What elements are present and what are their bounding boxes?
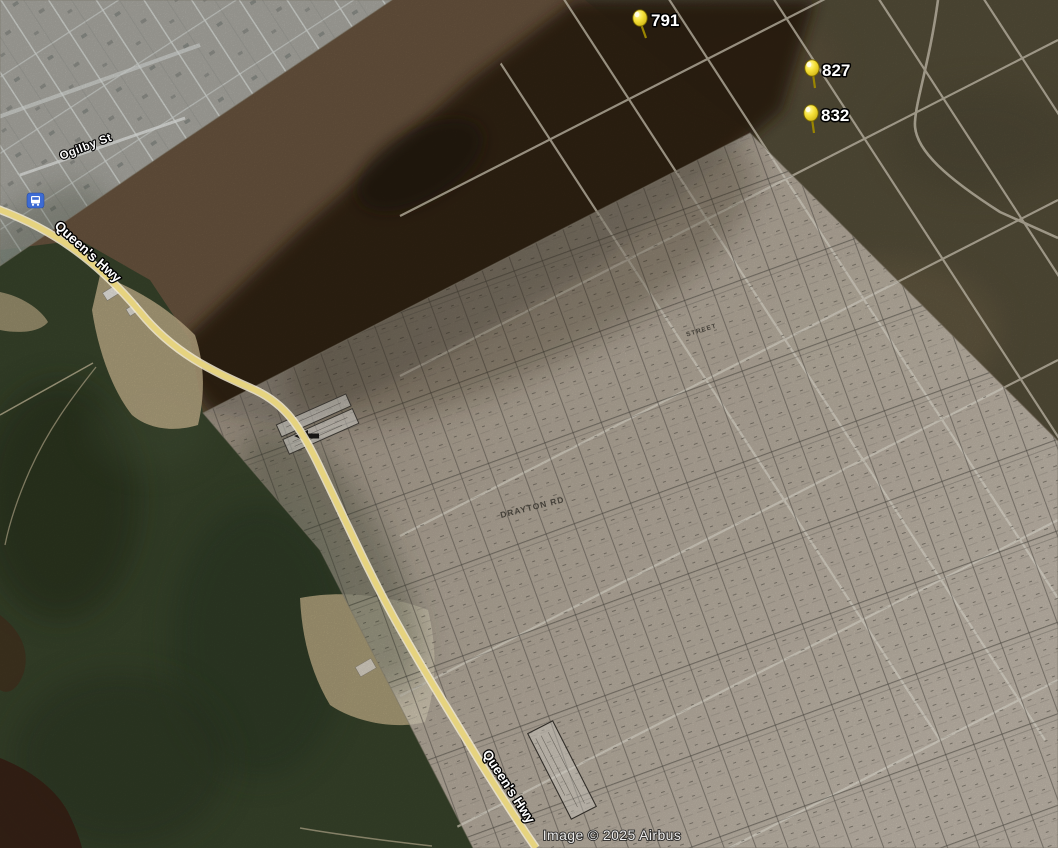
- pin-label-832[interactable]: 832: [821, 106, 849, 125]
- grain-texture: [0, 0, 1058, 848]
- pin-label-791[interactable]: 791: [651, 11, 679, 30]
- bus-stop-icon[interactable]: [27, 193, 44, 208]
- pin-label-827[interactable]: 827: [822, 61, 850, 80]
- imagery-attribution: Image © 2025 Airbus: [543, 827, 682, 843]
- map-canvas[interactable]: DRAYTON RD STREET Ogilby St Queen's Hwy …: [0, 0, 1058, 848]
